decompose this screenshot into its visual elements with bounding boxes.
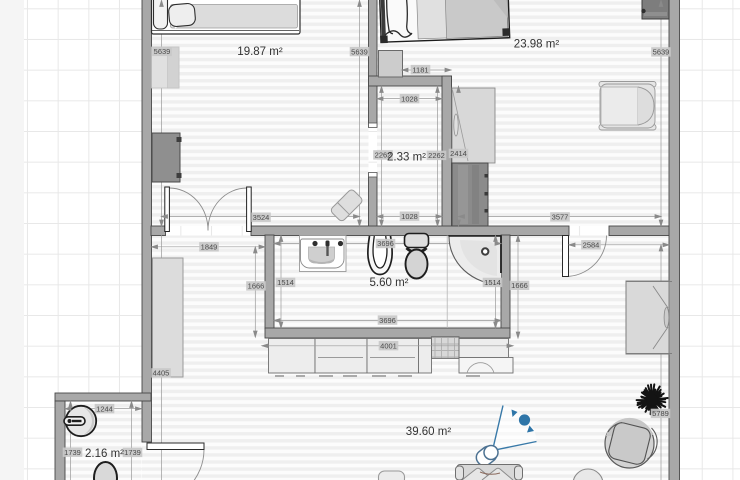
svg-text:4405: 4405 xyxy=(153,369,170,378)
svg-text:5639: 5639 xyxy=(351,47,368,56)
svg-text:2.33 m²: 2.33 m² xyxy=(387,152,426,164)
svg-text:4001: 4001 xyxy=(380,341,397,350)
svg-text:39.60 m²: 39.60 m² xyxy=(406,426,452,438)
svg-text:5.60 m²: 5.60 m² xyxy=(370,277,409,289)
svg-text:1028: 1028 xyxy=(401,94,418,103)
svg-text:2414: 2414 xyxy=(450,149,467,158)
svg-text:5789: 5789 xyxy=(652,409,669,418)
svg-text:2584: 2584 xyxy=(583,241,600,250)
svg-text:1666: 1666 xyxy=(248,282,265,291)
svg-text:19.87 m²: 19.87 m² xyxy=(237,46,283,58)
svg-text:1849: 1849 xyxy=(201,243,218,252)
svg-text:3696: 3696 xyxy=(377,239,394,248)
svg-text:1028: 1028 xyxy=(401,212,418,221)
svg-text:2262: 2262 xyxy=(428,151,445,160)
svg-text:1514: 1514 xyxy=(484,278,501,287)
svg-text:1739: 1739 xyxy=(124,448,141,457)
svg-text:1181: 1181 xyxy=(412,65,428,74)
svg-text:1244: 1244 xyxy=(96,404,113,413)
svg-text:2.16 m²: 2.16 m² xyxy=(85,448,124,460)
svg-text:5639: 5639 xyxy=(653,48,670,57)
svg-text:3577: 3577 xyxy=(552,213,569,222)
svg-text:3524: 3524 xyxy=(253,213,270,222)
svg-text:23.98 m²: 23.98 m² xyxy=(514,39,560,51)
svg-text:5639: 5639 xyxy=(154,47,171,56)
svg-text:1666: 1666 xyxy=(511,281,528,290)
svg-text:3696: 3696 xyxy=(379,316,396,325)
svg-text:1514: 1514 xyxy=(277,278,294,287)
svg-text:1739: 1739 xyxy=(64,448,81,457)
